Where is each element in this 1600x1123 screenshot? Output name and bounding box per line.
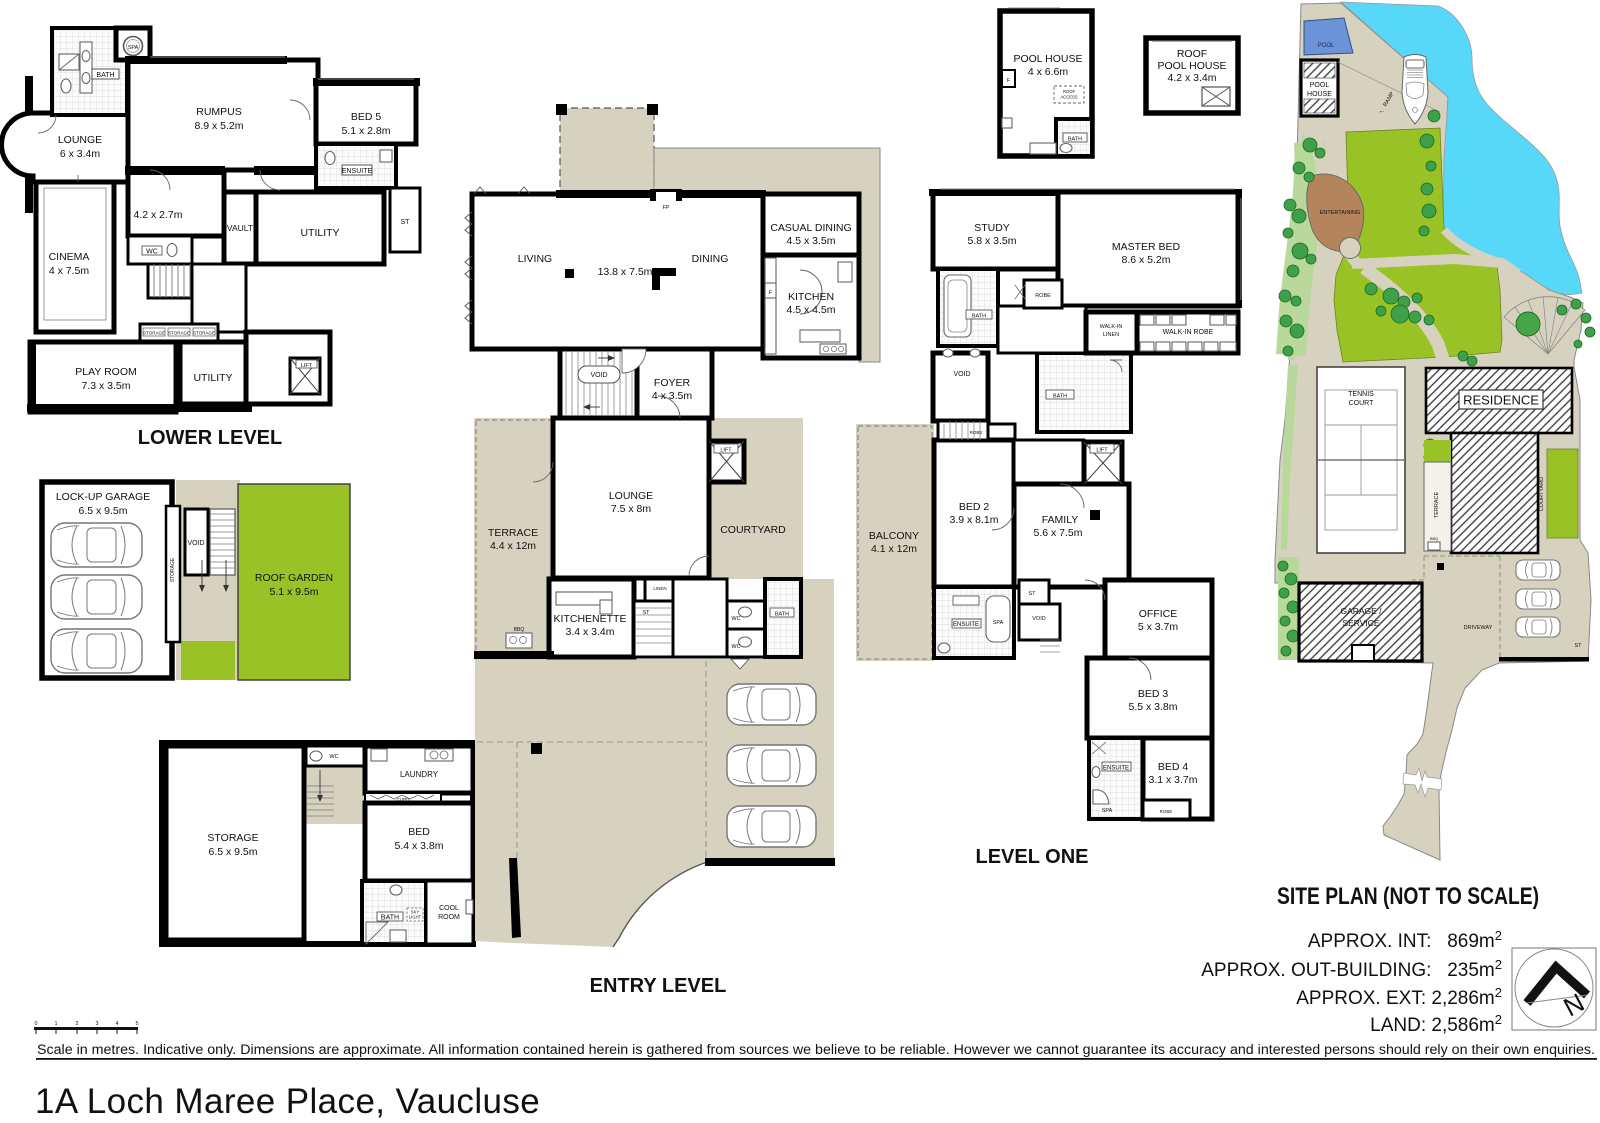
- svg-text:POOL HOUSE: POOL HOUSE: [1157, 60, 1226, 72]
- svg-text:APPROX. EXT: 2,286m2: APPROX. EXT: 2,286m2: [1296, 985, 1502, 1009]
- svg-text:5: 5: [135, 1021, 138, 1027]
- svg-text:APPROX. INT: 869m2: APPROX. INT: 869m2: [1308, 928, 1502, 952]
- svg-text:KITCHEN: KITCHEN: [788, 291, 834, 303]
- svg-text:4.2 x 3.4m: 4.2 x 3.4m: [1167, 72, 1216, 84]
- svg-text:5.6 x 7.5m: 5.6 x 7.5m: [1033, 527, 1082, 539]
- svg-text:2: 2: [75, 1021, 78, 1027]
- svg-text:TERRACE: TERRACE: [488, 527, 538, 539]
- svg-text:VAULT: VAULT: [227, 223, 253, 233]
- svg-text:ACCESS: ACCESS: [1060, 95, 1077, 100]
- svg-text:ENSUITE: ENSUITE: [1103, 766, 1129, 772]
- svg-text:ENTRY LEVEL: ENTRY LEVEL: [590, 975, 727, 997]
- svg-text:8.6 x 5.2m: 8.6 x 5.2m: [1121, 254, 1170, 266]
- svg-text:Scale in metres. Indicative on: Scale in metres. Indicative only. Dimens…: [37, 1042, 1595, 1057]
- svg-text:4.1 x 12m: 4.1 x 12m: [871, 543, 917, 555]
- svg-text:STORAGE: STORAGE: [143, 331, 165, 336]
- svg-text:BATH: BATH: [1053, 394, 1067, 400]
- svg-text:CINEMA: CINEMA: [49, 251, 90, 263]
- svg-text:LOUNGE: LOUNGE: [609, 490, 653, 502]
- svg-text:ROBE: ROBE: [1160, 809, 1173, 814]
- svg-text:4: 4: [115, 1021, 118, 1027]
- svg-text:LINEN: LINEN: [653, 586, 666, 591]
- svg-text:3.4 x 3.4m: 3.4 x 3.4m: [565, 626, 614, 638]
- svg-text:LIVING: LIVING: [518, 253, 552, 265]
- svg-text:ROBE: ROBE: [1035, 293, 1051, 299]
- svg-text:LAUNDRY: LAUNDRY: [400, 770, 439, 779]
- svg-text:4 x 7.5m: 4 x 7.5m: [49, 265, 90, 277]
- svg-text:ROOM: ROOM: [438, 914, 460, 921]
- svg-text:LOWER LEVEL: LOWER LEVEL: [138, 427, 282, 449]
- svg-text:BED 2: BED 2: [959, 501, 990, 513]
- svg-text:FOYER: FOYER: [654, 377, 691, 389]
- svg-text:STORAGE: STORAGE: [170, 557, 176, 582]
- svg-text:BBQ: BBQ: [1430, 537, 1438, 541]
- svg-text:BED 3: BED 3: [1138, 688, 1169, 700]
- svg-text:5.4 x 3.8m: 5.4 x 3.8m: [394, 840, 443, 852]
- svg-text:SERVICE: SERVICE: [1342, 618, 1379, 628]
- svg-text:COURTYARD: COURTYARD: [720, 524, 786, 536]
- svg-text:5.5 x 3.8m: 5.5 x 3.8m: [1128, 701, 1177, 713]
- svg-text:COURT: COURT: [1349, 400, 1374, 407]
- svg-text:BALCONY: BALCONY: [869, 530, 919, 542]
- svg-text:5.1 x 9.5m: 5.1 x 9.5m: [269, 586, 318, 598]
- svg-text:LIGHT: LIGHT: [409, 915, 422, 920]
- svg-text:WC: WC: [731, 616, 740, 622]
- svg-text:BATH: BATH: [96, 72, 114, 79]
- svg-text:ENTERTAINING: ENTERTAINING: [1320, 210, 1360, 216]
- svg-text:BATH: BATH: [381, 915, 399, 922]
- svg-text:VOID: VOID: [187, 540, 204, 547]
- svg-text:←: ←: [1379, 108, 1386, 115]
- svg-text:1: 1: [54, 1021, 57, 1027]
- svg-text:BED: BED: [408, 826, 430, 838]
- svg-text:PLAY ROOM: PLAY ROOM: [75, 366, 136, 378]
- svg-text:13.8 x 7.5m: 13.8 x 7.5m: [598, 266, 653, 278]
- svg-text:ROOF: ROOF: [1063, 89, 1076, 94]
- svg-text:4 x 6.6m: 4 x 6.6m: [1028, 66, 1069, 78]
- svg-text:RUMPUS: RUMPUS: [196, 106, 242, 118]
- svg-text:3: 3: [95, 1021, 98, 1027]
- svg-text:ROBE: ROBE: [970, 430, 983, 435]
- svg-text:ROOF: ROOF: [1177, 48, 1207, 60]
- svg-text:VOID: VOID: [1032, 616, 1045, 622]
- svg-text:ENSUITE: ENSUITE: [953, 622, 979, 628]
- svg-text:BED 5: BED 5: [351, 111, 382, 123]
- svg-text:HOUSE: HOUSE: [1307, 91, 1332, 98]
- svg-text:8.9 x 5.2m: 8.9 x 5.2m: [194, 120, 243, 132]
- svg-text:COOL: COOL: [439, 905, 459, 912]
- svg-text:BED 4: BED 4: [1158, 761, 1189, 773]
- svg-text:STORAGE: STORAGE: [207, 832, 258, 844]
- svg-text:FP: FP: [662, 205, 669, 211]
- svg-text:ROOF GARDEN: ROOF GARDEN: [255, 572, 333, 584]
- svg-text:6.5 x 9.5m: 6.5 x 9.5m: [208, 846, 257, 858]
- svg-text:7.5 x 8m: 7.5 x 8m: [611, 503, 652, 515]
- svg-text:3.1 x 3.7m: 3.1 x 3.7m: [1148, 774, 1197, 786]
- svg-text:7.3 x 3.5m: 7.3 x 3.5m: [81, 380, 130, 392]
- svg-text:ST: ST: [401, 219, 411, 226]
- svg-text:CUPD: CUPD: [397, 797, 411, 802]
- svg-text:4.4 x 12m: 4.4 x 12m: [490, 540, 536, 552]
- svg-text:LIFT: LIFT: [720, 448, 732, 454]
- svg-text:WALK-IN: WALK-IN: [1100, 324, 1123, 330]
- svg-text:COURTYARD: COURTYARD: [1539, 477, 1545, 511]
- svg-text:5.8 x 3.5m: 5.8 x 3.5m: [967, 235, 1016, 247]
- svg-text:SITE PLAN (NOT TO SCALE): SITE PLAN (NOT TO SCALE): [1277, 883, 1539, 910]
- svg-text:POOL: POOL: [1310, 82, 1330, 89]
- svg-text:WALK-IN ROBE: WALK-IN ROBE: [1163, 329, 1214, 336]
- svg-text:POOL HOUSE: POOL HOUSE: [1013, 53, 1082, 65]
- svg-text:4.5 x 4.5m: 4.5 x 4.5m: [786, 304, 835, 316]
- svg-text:UTILITY: UTILITY: [300, 227, 339, 239]
- svg-text:ENSUITE: ENSUITE: [342, 168, 373, 175]
- svg-text:STORAGE: STORAGE: [168, 331, 190, 336]
- svg-text:4.5 x 3.5m: 4.5 x 3.5m: [786, 235, 835, 247]
- svg-text:STORAGE: STORAGE: [193, 331, 215, 336]
- svg-text:BATH: BATH: [775, 612, 789, 618]
- svg-text:DINING: DINING: [692, 253, 729, 265]
- svg-text:LIFT: LIFT: [1096, 448, 1108, 454]
- svg-text:0: 0: [34, 1021, 37, 1027]
- svg-text:4 x 3.5m: 4 x 3.5m: [652, 390, 693, 402]
- svg-text:LOCK-UP GARAGE: LOCK-UP GARAGE: [56, 491, 150, 503]
- svg-text:TENNIS: TENNIS: [1348, 391, 1374, 398]
- svg-text:RESIDENCE: RESIDENCE: [1463, 393, 1539, 408]
- svg-text:TERRACE: TERRACE: [1434, 492, 1440, 519]
- svg-text:POOL: POOL: [1318, 43, 1335, 49]
- svg-text:3.9 x 8.1m: 3.9 x 8.1m: [949, 514, 998, 526]
- svg-text:BATH: BATH: [972, 314, 986, 320]
- svg-text:1A Loch Maree Place, Vaucluse: 1A Loch Maree Place, Vaucluse: [35, 1082, 540, 1121]
- svg-text:6 x 3.4m: 6 x 3.4m: [60, 148, 101, 160]
- svg-text:5 x 3.7m: 5 x 3.7m: [1138, 621, 1179, 633]
- svg-text:WC: WC: [329, 754, 338, 760]
- svg-text:5.1 x 2.8m: 5.1 x 2.8m: [341, 125, 390, 137]
- svg-text:DRIVEWAY: DRIVEWAY: [1464, 625, 1493, 631]
- svg-text:UTILITY: UTILITY: [193, 372, 232, 384]
- svg-text:OFFICE: OFFICE: [1139, 608, 1178, 620]
- svg-text:FAMILY: FAMILY: [1042, 514, 1079, 526]
- svg-text:WC: WC: [731, 644, 740, 650]
- svg-text:BATH: BATH: [1068, 137, 1082, 143]
- svg-text:ST: ST: [1574, 643, 1582, 649]
- svg-text:BBQ: BBQ: [514, 627, 525, 633]
- svg-text:LINEN: LINEN: [1103, 332, 1119, 338]
- svg-text:ST: ST: [1028, 591, 1036, 597]
- svg-text:APPROX. OUT-BUILDING: 235m2: APPROX. OUT-BUILDING: 235m2: [1201, 957, 1502, 981]
- svg-text:MASTER BED: MASTER BED: [1112, 241, 1181, 253]
- svg-text:LEVEL ONE: LEVEL ONE: [976, 846, 1089, 868]
- svg-text:LOUNGE: LOUNGE: [58, 134, 102, 146]
- svg-text:LAND: 2,586m2: LAND: 2,586m2: [1370, 1012, 1502, 1036]
- svg-text:KITCHENETTE: KITCHENETTE: [554, 613, 627, 625]
- svg-text:4.2 x 2.7m: 4.2 x 2.7m: [133, 209, 182, 221]
- svg-text:SPA: SPA: [128, 45, 139, 51]
- svg-text:LIFT: LIFT: [301, 363, 313, 369]
- svg-text:ST: ST: [642, 610, 650, 616]
- svg-text:VOID: VOID: [590, 372, 607, 379]
- svg-text:SPA: SPA: [1102, 808, 1113, 814]
- svg-text:STUDY: STUDY: [974, 222, 1010, 234]
- svg-text:GARAGE /: GARAGE /: [1340, 606, 1382, 616]
- svg-text:WC: WC: [146, 249, 158, 256]
- svg-text:SPA: SPA: [993, 620, 1004, 626]
- svg-text:CASUAL DINING: CASUAL DINING: [770, 222, 851, 234]
- svg-text:VOID: VOID: [953, 371, 970, 378]
- svg-text:6.5 x 9.5m: 6.5 x 9.5m: [78, 505, 127, 517]
